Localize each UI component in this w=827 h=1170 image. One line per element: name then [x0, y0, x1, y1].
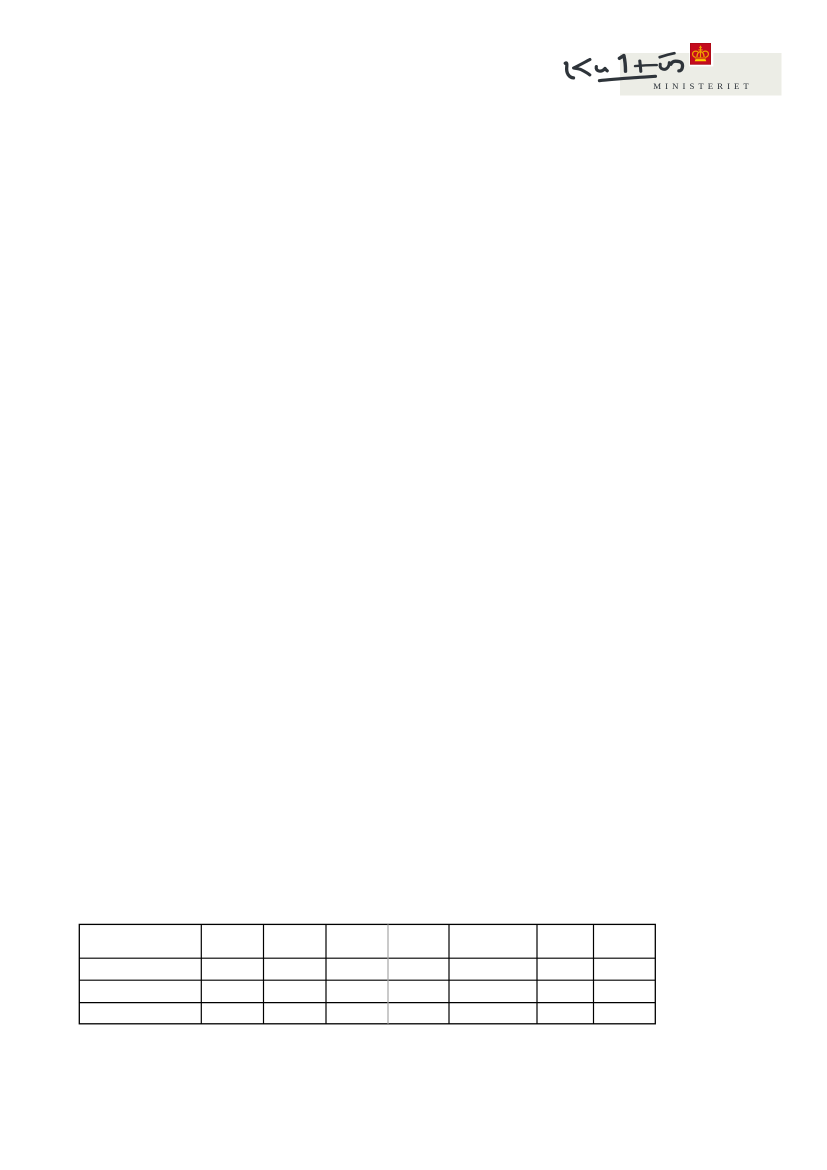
svg-text:MINISTERIET: MINISTERIET	[653, 81, 749, 91]
